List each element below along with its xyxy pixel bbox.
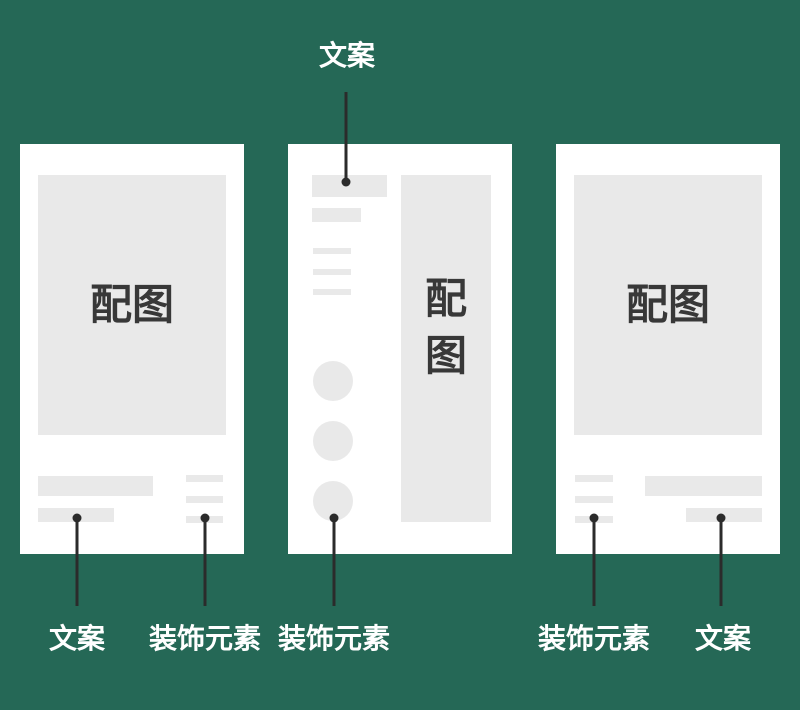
wireframe-card-left: 配图 [20, 144, 244, 554]
image-placeholder-label: 配 图 [425, 270, 467, 384]
copy-line-2 [313, 269, 351, 275]
decor-bar-1 [186, 475, 223, 482]
wireframe-card-middle: 配 图 [288, 144, 512, 554]
image-placeholder-middle: 配 图 [401, 175, 491, 522]
connector-line [720, 518, 723, 606]
connector-dot [342, 178, 351, 187]
decor-circle-1 [313, 361, 353, 401]
image-placeholder-left: 配图 [38, 175, 226, 435]
copy-bar-wide [645, 476, 762, 496]
connector-line [333, 518, 336, 606]
copy-bar-subtitle [312, 208, 361, 222]
annotation-decor-label: 装饰元素 [149, 625, 261, 653]
image-placeholder-right: 配图 [574, 175, 762, 435]
annotation-copy-label: 文案 [49, 625, 105, 653]
annotation-decor-label: 装饰元素 [278, 625, 390, 653]
annotation-top-copy-label: 文案 [319, 42, 375, 70]
connector-line [345, 92, 348, 182]
connector-line [76, 518, 79, 606]
design-layout-infographic: 配图 配 图 配图 文案 文案 装 [0, 0, 800, 710]
decor-bar-1 [575, 475, 613, 482]
copy-line-3 [313, 289, 351, 295]
decor-circle-2 [313, 421, 353, 461]
annotation-decor-label: 装饰元素 [538, 625, 650, 653]
connector-line [204, 518, 207, 606]
decor-bar-2 [186, 496, 223, 503]
connector-line [593, 518, 596, 606]
copy-line-1 [313, 248, 351, 254]
annotation-copy-label: 文案 [695, 625, 751, 653]
decor-bar-2 [575, 496, 613, 503]
copy-bar-wide [38, 476, 153, 496]
wireframe-card-right: 配图 [556, 144, 780, 554]
image-placeholder-label: 配图 [90, 284, 174, 326]
image-placeholder-label: 配图 [626, 284, 710, 326]
